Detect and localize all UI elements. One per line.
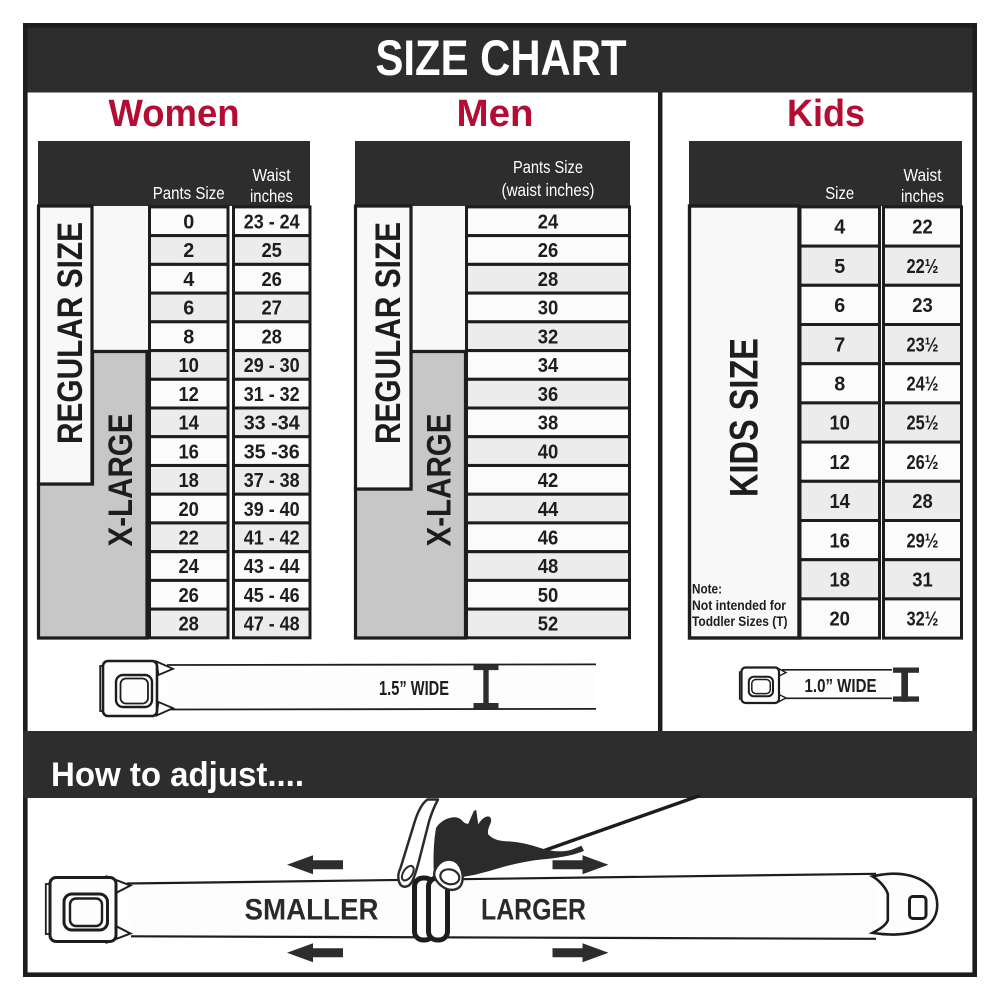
svg-text:28: 28 (178, 614, 199, 636)
svg-text:23 - 24: 23 - 24 (244, 212, 301, 234)
svg-text:47 - 48: 47 - 48 (244, 614, 300, 636)
svg-text:22½: 22½ (907, 256, 939, 278)
svg-text:32: 32 (538, 326, 559, 348)
svg-text:6: 6 (834, 295, 845, 317)
svg-text:Kids: Kids (787, 93, 865, 135)
svg-text:41 - 42: 41 - 42 (244, 528, 300, 550)
svg-text:50: 50 (538, 585, 559, 607)
svg-text:39 - 40: 39 - 40 (244, 499, 300, 521)
svg-text:LARGER: LARGER (481, 894, 586, 927)
svg-text:45 - 46: 45 - 46 (244, 585, 300, 607)
svg-text:16: 16 (829, 530, 850, 552)
svg-text:33 -34: 33 -34 (244, 413, 301, 435)
svg-text:inches: inches (901, 186, 944, 206)
svg-text:4: 4 (183, 269, 195, 291)
svg-text:44: 44 (538, 499, 559, 521)
svg-text:31: 31 (912, 570, 933, 592)
svg-text:inches: inches (250, 186, 293, 206)
svg-text:28: 28 (261, 326, 282, 348)
svg-text:(waist inches): (waist inches) (502, 180, 595, 200)
svg-text:20: 20 (829, 609, 850, 631)
svg-text:0: 0 (183, 212, 194, 234)
svg-text:48: 48 (538, 556, 559, 578)
svg-text:KIDS SIZE: KIDS SIZE (723, 338, 767, 497)
svg-text:26: 26 (538, 240, 559, 262)
svg-text:16: 16 (178, 441, 199, 463)
svg-text:SMALLER: SMALLER (245, 894, 379, 927)
svg-text:32½: 32½ (907, 609, 939, 631)
svg-text:28: 28 (912, 491, 933, 513)
svg-text:4: 4 (834, 217, 846, 239)
svg-text:34: 34 (538, 355, 559, 377)
svg-text:REGULAR SIZE: REGULAR SIZE (51, 222, 90, 444)
svg-text:10: 10 (178, 355, 199, 377)
svg-text:24: 24 (178, 556, 199, 578)
svg-text:5: 5 (834, 256, 845, 278)
svg-text:24: 24 (538, 212, 559, 234)
svg-text:25½: 25½ (907, 413, 939, 435)
svg-text:30: 30 (538, 298, 559, 320)
svg-text:22: 22 (912, 217, 933, 239)
svg-text:1.5” WIDE: 1.5” WIDE (379, 678, 449, 700)
svg-text:7: 7 (834, 334, 845, 356)
svg-text:36: 36 (538, 384, 559, 406)
svg-text:26: 26 (178, 585, 199, 607)
svg-text:REGULAR SIZE: REGULAR SIZE (369, 222, 408, 444)
svg-text:52: 52 (538, 614, 559, 636)
svg-text:46: 46 (538, 528, 559, 550)
svg-text:37 - 38: 37 - 38 (244, 470, 300, 492)
svg-text:10: 10 (829, 413, 850, 435)
svg-text:40: 40 (538, 441, 559, 463)
svg-text:Toddler Sizes (T): Toddler Sizes (T) (692, 614, 788, 629)
svg-text:28: 28 (538, 269, 559, 291)
svg-text:27: 27 (261, 298, 282, 320)
svg-text:29 - 30: 29 - 30 (244, 355, 300, 377)
svg-text:Pants Size: Pants Size (153, 183, 225, 203)
svg-text:12: 12 (829, 452, 850, 474)
svg-text:Waist: Waist (904, 165, 942, 185)
svg-text:26: 26 (261, 269, 282, 291)
svg-text:18: 18 (178, 470, 199, 492)
svg-text:Pants Size: Pants Size (513, 157, 583, 177)
svg-text:42: 42 (538, 470, 559, 492)
svg-text:31 - 32: 31 - 32 (244, 384, 300, 406)
svg-text:12: 12 (178, 384, 199, 406)
svg-text:Size: Size (825, 183, 854, 203)
svg-text:18: 18 (829, 570, 850, 592)
svg-text:24½: 24½ (907, 374, 939, 396)
svg-text:43 - 44: 43 - 44 (244, 556, 301, 578)
svg-text:2: 2 (183, 240, 194, 262)
svg-text:23½: 23½ (907, 334, 939, 356)
svg-text:How to adjust....: How to adjust.... (51, 756, 304, 794)
svg-text:Women: Women (109, 93, 240, 135)
svg-text:26½: 26½ (907, 452, 939, 474)
svg-text:23: 23 (912, 295, 933, 317)
svg-text:6: 6 (183, 298, 194, 320)
svg-text:25: 25 (261, 240, 282, 262)
svg-text:29½: 29½ (907, 530, 939, 552)
svg-text:Note:: Note: (692, 581, 722, 596)
svg-text:SIZE CHART: SIZE CHART (376, 30, 627, 86)
svg-text:1.0” WIDE: 1.0” WIDE (805, 676, 877, 696)
svg-text:38: 38 (538, 413, 559, 435)
svg-text:14: 14 (178, 413, 199, 435)
svg-text:35 -36: 35 -36 (244, 441, 300, 463)
svg-text:8: 8 (183, 326, 194, 348)
svg-text:Men: Men (457, 93, 534, 135)
svg-text:X-LARGE: X-LARGE (102, 414, 140, 547)
svg-text:22: 22 (178, 528, 199, 550)
svg-text:20: 20 (178, 499, 199, 521)
svg-text:X-LARGE: X-LARGE (421, 414, 459, 547)
svg-text:14: 14 (829, 491, 850, 513)
svg-text:Not intended for: Not intended for (692, 598, 787, 613)
svg-text:Waist: Waist (253, 165, 291, 185)
svg-text:8: 8 (834, 374, 845, 396)
